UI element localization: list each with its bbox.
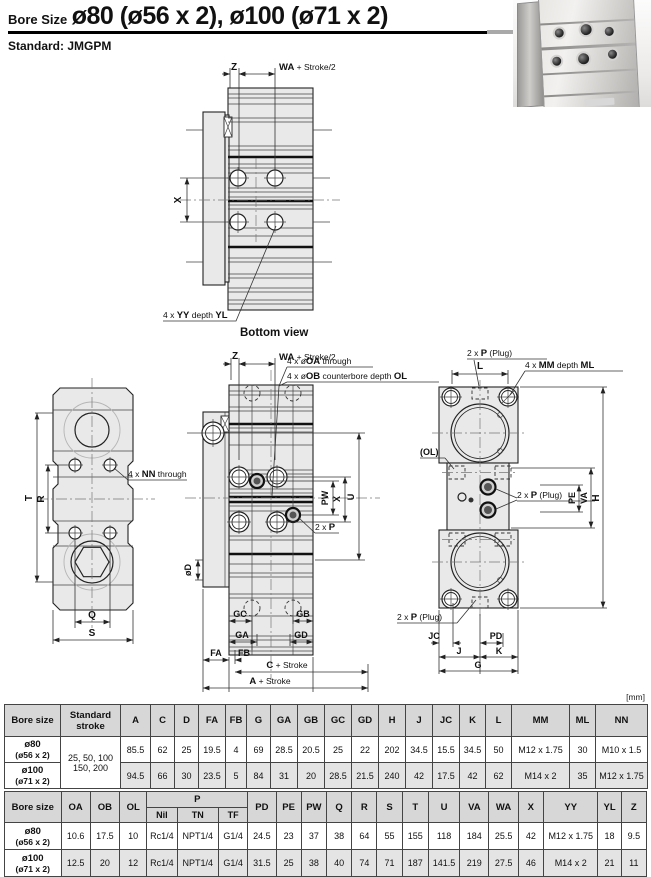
dimension-value-cell: 23.5 xyxy=(199,763,226,789)
dimension-value-cell: 42 xyxy=(518,823,543,850)
dim-label-ol: (OL) xyxy=(420,447,439,457)
table-row: ø100(ø71 x 2)12.52012Rc1/4NPT1/4G1/431.5… xyxy=(5,850,647,877)
column-header: VA xyxy=(460,792,489,823)
dimension-value-cell: 240 xyxy=(379,763,406,789)
dim-label-k: K xyxy=(496,646,503,656)
dimension-table-1: Bore sizeStandard strokeACDFAFBGGAGBGCGD… xyxy=(4,704,648,789)
dimension-value-cell: 62 xyxy=(486,763,512,789)
dimension-value-cell: NPT1/4 xyxy=(177,823,218,850)
cylinder-body-outline xyxy=(228,88,313,310)
dimension-value-cell: 34.5 xyxy=(406,737,433,763)
top-view-drawing: 2 x P (Plug) L 4 x MM depth ML (OL) 2 x … xyxy=(390,348,651,680)
dimension-value-cell: 141.5 xyxy=(428,850,459,877)
dimension-value-cell: 10.6 xyxy=(61,823,90,850)
bore-size-cell: ø100(ø71 x 2) xyxy=(5,850,62,877)
dimension-value-cell: 30 xyxy=(570,737,596,763)
units-note: [mm] xyxy=(626,692,645,702)
column-header: OL xyxy=(120,792,147,823)
dimension-value-cell: 155 xyxy=(402,823,428,850)
dimension-value-cell: 38 xyxy=(301,850,326,877)
dimension-value-cell: NPT1/4 xyxy=(177,850,218,877)
dim-label-g: G xyxy=(474,660,481,670)
photo-seam xyxy=(544,90,638,97)
dim-label-d: øD xyxy=(183,564,193,576)
photo-port-hole xyxy=(608,50,617,59)
dimension-value-cell: 38 xyxy=(326,823,351,850)
dim-label-j: J xyxy=(456,646,461,656)
column-header: P xyxy=(147,792,248,808)
title-prefix: Bore Size xyxy=(8,12,67,27)
photo-port-hole xyxy=(580,24,592,36)
dimension-value-cell: 64 xyxy=(352,823,377,850)
view-caption: Bottom view xyxy=(240,327,308,339)
port-thread-subheader: TN xyxy=(177,808,218,823)
dimension-value-cell: 40 xyxy=(326,850,351,877)
dimension-value-cell: 69 xyxy=(247,737,271,763)
dimension-value-cell: 27.5 xyxy=(489,850,518,877)
page-title: Bore Size ø80 (ø56 x 2), ø100 (ø71 x 2) xyxy=(8,2,388,31)
dimension-value-cell: 46 xyxy=(518,850,543,877)
dim-label-l: L xyxy=(477,361,483,372)
dim-label-fa: FA xyxy=(210,648,222,658)
column-header: GA xyxy=(271,705,298,737)
port-thread-subheader: TF xyxy=(218,808,247,823)
dimension-value-cell: M14 x 2 xyxy=(512,763,570,789)
column-header: FB xyxy=(226,705,247,737)
dim-label-gc: GC xyxy=(233,609,247,619)
column-header: GC xyxy=(325,705,352,737)
dim-label-a-stroke: A + Stroke xyxy=(249,676,290,687)
plug-note-bottom: 2 x P (Plug) xyxy=(397,612,442,623)
catalog-page: Bore Size ø80 (ø56 x 2), ø100 (ø71 x 2) … xyxy=(0,0,651,877)
bore-size-cell: ø80(ø56 x 2) xyxy=(5,823,62,850)
dimension-value-cell: Rc1/4 xyxy=(147,823,177,850)
dimension-value-cell: 31 xyxy=(271,763,298,789)
dimension-value-cell: 84 xyxy=(247,763,271,789)
column-header: Bore size xyxy=(5,705,61,737)
column-header: ML xyxy=(570,705,596,737)
table-2-body: ø80(ø56 x 2)10.617.510Rc1/4NPT1/4G1/424.… xyxy=(5,823,647,877)
dimension-value-cell: 25 xyxy=(175,737,199,763)
dimension-value-cell: 37 xyxy=(301,823,326,850)
column-header: GB xyxy=(298,705,325,737)
plug-note-middle: 2 x P (Plug) xyxy=(517,490,562,501)
table-1-header: Bore sizeStandard strokeACDFAFBGGAGBGCGD… xyxy=(5,705,648,737)
dimension-value-cell: 31.5 xyxy=(248,850,276,877)
mounting-plate-outline xyxy=(203,112,225,285)
column-header: OB xyxy=(90,792,119,823)
dim-label-q: Q xyxy=(88,610,96,621)
bottom-view-drawing: Z WA + Stroke/2 X 4 x YY depth YL Bottom… xyxy=(140,60,485,352)
dim-label-r: R xyxy=(36,495,47,503)
photo-name-plate xyxy=(584,98,614,107)
column-header: NN xyxy=(596,705,648,737)
dim-label-gd: GD xyxy=(294,630,308,640)
dimension-value-cell: 4 xyxy=(226,737,247,763)
dimension-value-cell: 25 xyxy=(325,737,352,763)
dim-label-fb: FB xyxy=(238,648,250,658)
dimension-value-cell: 11 xyxy=(621,850,646,877)
column-header: C xyxy=(151,705,175,737)
dimension-value-cell: 25 xyxy=(276,850,301,877)
dimension-value-cell: 184 xyxy=(460,823,489,850)
oa-holes-note: 4 x øOA through xyxy=(287,356,352,367)
dim-label-z: Z xyxy=(231,62,237,73)
dimension-value-cell: 21 xyxy=(598,850,621,877)
dimension-value-cell: 35 xyxy=(570,763,596,789)
dimension-value-cell: 50 xyxy=(486,737,512,763)
dimension-value-cell: 30 xyxy=(175,763,199,789)
column-header: R xyxy=(352,792,377,823)
mm-holes-note: 4 x MM depth ML xyxy=(525,360,594,371)
column-header: A xyxy=(121,705,151,737)
dimension-value-cell: 66 xyxy=(151,763,175,789)
dimension-value-cell: M10 x 1.5 xyxy=(596,737,648,763)
column-header: U xyxy=(428,792,459,823)
standard-model-subtitle: Standard: JMGPM xyxy=(8,39,111,53)
subtitle-value: JMGPM xyxy=(67,39,111,53)
dimension-value-cell: 20 xyxy=(298,763,325,789)
column-header: WA xyxy=(489,792,518,823)
dimension-value-cell: 55 xyxy=(377,823,402,850)
dim-label-x: X xyxy=(332,496,342,502)
column-header: PD xyxy=(248,792,276,823)
product-photo-body xyxy=(538,0,640,107)
column-header: Q xyxy=(326,792,351,823)
dim-label-t: T xyxy=(24,495,35,501)
table-2-header: Bore sizeOAOBOLPPDPEPWQRSTUVAWAXYYYLZNil… xyxy=(5,792,647,823)
column-header: L xyxy=(486,705,512,737)
table-row: ø80(ø56 x 2)25, 50, 100150, 20085.562251… xyxy=(5,737,648,763)
dimension-value-cell: 21.5 xyxy=(352,763,379,789)
dimension-value-cell: 25.5 xyxy=(489,823,518,850)
column-header: YY xyxy=(543,792,598,823)
table-row: ø80(ø56 x 2)10.617.510Rc1/4NPT1/4G1/424.… xyxy=(5,823,647,850)
dimension-value-cell: 18 xyxy=(598,823,621,850)
photo-port-hole xyxy=(605,27,614,36)
dimension-value-cell: 118 xyxy=(428,823,459,850)
column-header: K xyxy=(460,705,486,737)
dimension-value-cell: 20.5 xyxy=(298,737,325,763)
column-header: FA xyxy=(199,705,226,737)
column-header: J xyxy=(406,705,433,737)
dimension-table-2: Bore sizeOAOBOLPPDPEPWQRSTUVAWAXYYYLZNil… xyxy=(4,791,647,877)
dimension-value-cell: G1/4 xyxy=(218,850,247,877)
dimension-value-cell: M14 x 2 xyxy=(543,850,598,877)
standard-stroke-cell: 25, 50, 100150, 200 xyxy=(61,737,121,789)
dimension-value-cell: 42 xyxy=(406,763,433,789)
slide-section-outline xyxy=(447,463,509,530)
dim-label-z: Z xyxy=(232,351,238,362)
dimension-value-cell: 20 xyxy=(90,850,119,877)
bore-size-cell: ø80(ø56 x 2) xyxy=(5,737,61,763)
photo-port-hole xyxy=(578,53,590,65)
dim-label-c-stroke: C + Stroke xyxy=(266,660,307,671)
column-header: Bore size xyxy=(5,792,62,823)
dimension-value-cell: 62 xyxy=(151,737,175,763)
column-header: JC xyxy=(433,705,460,737)
header-row: Bore sizeStandard strokeACDFAFBGGAGBGCGD… xyxy=(5,705,648,737)
column-header: PW xyxy=(301,792,326,823)
dim-label-jc: JC xyxy=(428,631,440,641)
dimension-value-cell: 19.5 xyxy=(199,737,226,763)
dimension-value-cell: 42 xyxy=(460,763,486,789)
dimension-value-cell: M12 x 1.75 xyxy=(543,823,598,850)
dimension-value-cell: 71 xyxy=(377,850,402,877)
dim-label-ga: GA xyxy=(235,630,249,640)
column-header: YL xyxy=(598,792,621,823)
dim-label-pw: PW xyxy=(320,490,330,505)
dim-label-x: X xyxy=(173,196,184,203)
column-header: MM xyxy=(512,705,570,737)
dim-label-gb: GB xyxy=(296,609,310,619)
dimension-value-cell: 23 xyxy=(276,823,301,850)
column-header: D xyxy=(175,705,199,737)
subtitle-label: Standard: xyxy=(8,39,64,53)
header-row: Bore sizeOAOBOLPPDPEPWQRSTUVAWAXYYYLZ xyxy=(5,792,647,808)
bore-size-cell: ø100(ø71 x 2) xyxy=(5,763,61,789)
dimension-value-cell: 17.5 xyxy=(433,763,460,789)
column-header: OA xyxy=(61,792,90,823)
dim-label-s: S xyxy=(89,628,96,639)
ports-note-2xp: 2 x P xyxy=(315,522,336,533)
column-header: Standard stroke xyxy=(61,705,121,737)
dim-label-pe: PE xyxy=(567,492,577,504)
column-header: X xyxy=(518,792,543,823)
dimension-value-cell: 28.5 xyxy=(325,763,352,789)
column-header: PE xyxy=(276,792,301,823)
dim-label-wa-stroke: WA + Stroke/2 xyxy=(279,62,336,73)
dimension-value-cell: 9.5 xyxy=(621,823,646,850)
dimension-value-cell: M12 x 1.75 xyxy=(512,737,570,763)
title-bore-sizes: ø80 (ø56 x 2), ø100 (ø71 x 2) xyxy=(72,2,388,30)
dim-label-h: H xyxy=(591,494,602,501)
dimension-value-cell: 34.5 xyxy=(460,737,486,763)
dimension-value-cell: 94.5 xyxy=(121,763,151,789)
column-header: S xyxy=(377,792,402,823)
dim-label-va: VA xyxy=(579,492,589,504)
product-photo xyxy=(513,0,651,107)
dimension-value-cell: 74 xyxy=(352,850,377,877)
photo-seam xyxy=(543,69,637,76)
photo-port-hole xyxy=(552,56,561,65)
photo-seam xyxy=(541,43,635,51)
dimension-value-cell: M12 x 1.75 xyxy=(596,763,648,789)
dimension-value-cell: 24.5 xyxy=(248,823,276,850)
column-header: GD xyxy=(352,705,379,737)
dimension-value-cell: 22 xyxy=(352,737,379,763)
column-header: Z xyxy=(621,792,646,823)
table-1-body: ø80(ø56 x 2)25, 50, 100150, 20085.562251… xyxy=(5,737,648,789)
photo-port-hole xyxy=(555,28,564,37)
dimension-value-cell: 5 xyxy=(226,763,247,789)
dim-label-pd: PD xyxy=(490,631,503,641)
dimension-value-cell: Rc1/4 xyxy=(147,850,177,877)
column-header: G xyxy=(247,705,271,737)
dimension-value-cell: 15.5 xyxy=(433,737,460,763)
dim-label-u: U xyxy=(346,494,356,501)
title-underline xyxy=(8,31,488,34)
dimension-value-cell: 10 xyxy=(120,823,147,850)
plug-note-top: 2 x P (Plug) xyxy=(467,348,512,359)
dimension-value-cell: 28.5 xyxy=(271,737,298,763)
port-thread-subheader: Nil xyxy=(147,808,177,823)
dimension-value-cell: 12.5 xyxy=(61,850,90,877)
column-header: H xyxy=(379,705,406,737)
dimension-value-cell: 219 xyxy=(460,850,489,877)
dimension-value-cell: 187 xyxy=(402,850,428,877)
dimension-value-cell: 17.5 xyxy=(90,823,119,850)
dimension-value-cell: G1/4 xyxy=(218,823,247,850)
dimension-value-cell: 202 xyxy=(379,737,406,763)
column-header: T xyxy=(402,792,428,823)
yy-holes-note: 4 x YY depth YL xyxy=(163,310,228,321)
dimension-value-cell: 85.5 xyxy=(121,737,151,763)
dimension-value-cell: 12 xyxy=(120,850,147,877)
